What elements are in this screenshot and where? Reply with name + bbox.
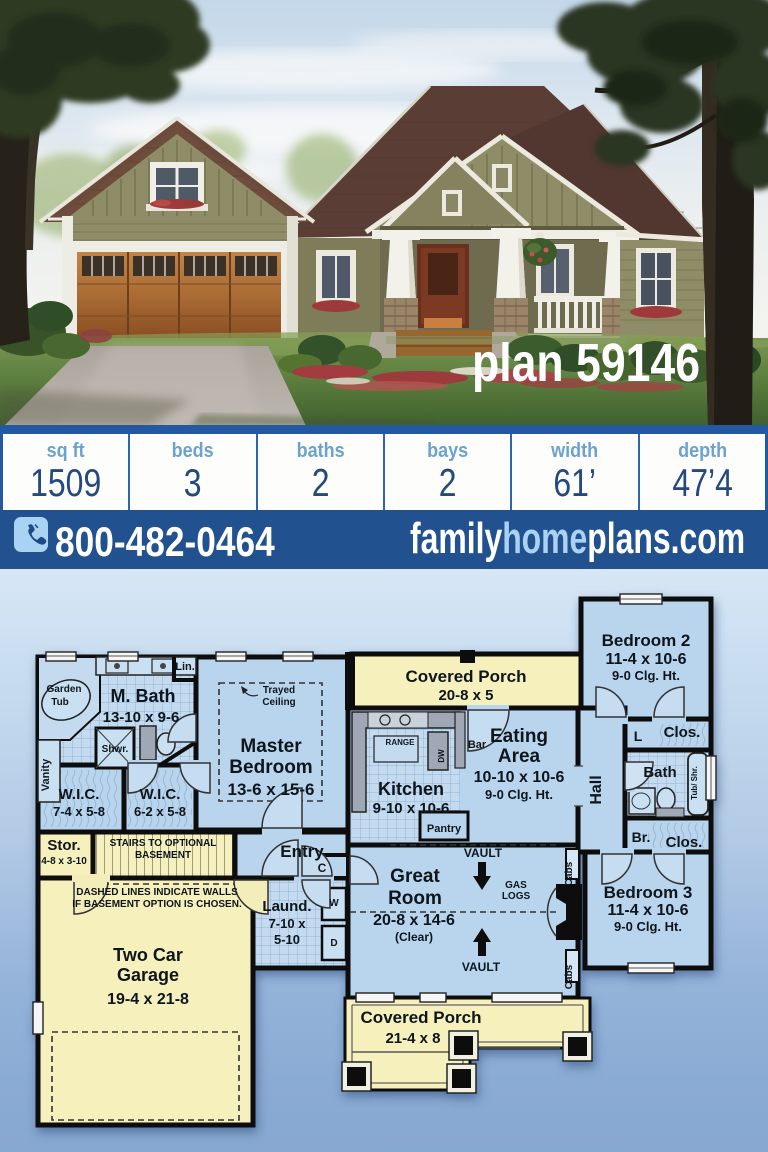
svg-text:Pantry: Pantry bbox=[427, 823, 462, 835]
svg-text:Stor.: Stor. bbox=[47, 837, 80, 854]
svg-text:10-10 x 10-6: 10-10 x 10-6 bbox=[474, 769, 565, 786]
svg-text:Bath: Bath bbox=[643, 764, 676, 781]
svg-text:4-8 x 3-10: 4-8 x 3-10 bbox=[41, 856, 87, 867]
svg-text:Covered Porch: Covered Porch bbox=[361, 1008, 482, 1027]
svg-text:11-4 x 10-6: 11-4 x 10-6 bbox=[608, 902, 689, 919]
svg-text:Cabs: Cabs bbox=[564, 861, 575, 886]
svg-text:20-8 x 5: 20-8 x 5 bbox=[438, 687, 493, 704]
svg-text:W: W bbox=[329, 898, 339, 909]
svg-text:IF BASEMENT OPTION IS CHOSEN.: IF BASEMENT OPTION IS CHOSEN. bbox=[72, 899, 242, 910]
svg-text:9-0 Clg. Ht.: 9-0 Clg. Ht. bbox=[612, 668, 680, 683]
svg-text:Br.: Br. bbox=[632, 829, 651, 845]
svg-text:20-8 x 14-6: 20-8 x 14-6 bbox=[373, 912, 455, 929]
svg-text:Garden: Garden bbox=[46, 684, 81, 695]
svg-text:Room: Room bbox=[388, 888, 442, 909]
svg-text:RANGE: RANGE bbox=[386, 738, 416, 747]
svg-text:9-0 Clg. Ht.: 9-0 Clg. Ht. bbox=[485, 787, 553, 802]
svg-text:Bedroom 3: Bedroom 3 bbox=[604, 883, 693, 902]
svg-text:D: D bbox=[330, 938, 337, 949]
svg-text:Ceiling: Ceiling bbox=[262, 697, 295, 708]
svg-text:Garage: Garage bbox=[117, 965, 179, 985]
svg-text:Bedroom: Bedroom bbox=[229, 757, 312, 778]
svg-text:plan 59146: plan 59146 bbox=[472, 333, 700, 393]
svg-text:11-4 x 10-6: 11-4 x 10-6 bbox=[606, 651, 687, 668]
svg-text:VAULT: VAULT bbox=[462, 960, 501, 974]
svg-text:Vanity: Vanity bbox=[40, 758, 52, 791]
svg-text:Covered Porch: Covered Porch bbox=[406, 667, 527, 686]
svg-text:13-10 x 9-6: 13-10 x 9-6 bbox=[103, 709, 180, 726]
svg-text:Tub/ Shr.: Tub/ Shr. bbox=[690, 766, 699, 800]
svg-text:Hall: Hall bbox=[588, 775, 605, 804]
svg-text:DW: DW bbox=[437, 749, 446, 763]
svg-text:Area: Area bbox=[498, 746, 541, 767]
svg-text:Lin.: Lin. bbox=[175, 661, 195, 673]
svg-text:GAS: GAS bbox=[505, 880, 527, 891]
svg-text:Clos.: Clos. bbox=[666, 834, 703, 851]
svg-text:Great: Great bbox=[390, 866, 440, 887]
svg-text:Tub: Tub bbox=[51, 697, 69, 708]
svg-text:Two Car: Two Car bbox=[113, 945, 183, 965]
svg-text:Shwr.: Shwr. bbox=[102, 744, 129, 755]
svg-text:STAIRS TO OPTIONAL: STAIRS TO OPTIONAL bbox=[110, 838, 217, 849]
svg-text:Entry: Entry bbox=[280, 842, 324, 861]
svg-text:7-10 x: 7-10 x bbox=[269, 916, 307, 931]
svg-text:Bedroom 2: Bedroom 2 bbox=[602, 631, 691, 650]
svg-text:Trayed: Trayed bbox=[263, 685, 295, 696]
svg-text:VAULT: VAULT bbox=[464, 846, 503, 860]
svg-text:Bar: Bar bbox=[468, 739, 487, 751]
svg-text:Master: Master bbox=[240, 736, 302, 757]
svg-text:C: C bbox=[318, 861, 327, 875]
svg-text:Cabs: Cabs bbox=[564, 964, 575, 989]
svg-text:DASHED LINES INDICATE WALLS: DASHED LINES INDICATE WALLS bbox=[76, 887, 238, 898]
svg-text:9-10 x 10-6: 9-10 x 10-6 bbox=[373, 800, 450, 817]
svg-text:L: L bbox=[634, 728, 643, 744]
svg-text:LOGS: LOGS bbox=[502, 891, 531, 902]
svg-text:6-2 x 5-8: 6-2 x 5-8 bbox=[134, 804, 186, 819]
svg-text:19-4 x 21-8: 19-4 x 21-8 bbox=[107, 991, 189, 1008]
svg-text:Laund.: Laund. bbox=[262, 898, 311, 915]
svg-text:Clos.: Clos. bbox=[664, 724, 701, 741]
svg-text:Kitchen: Kitchen bbox=[378, 779, 444, 799]
svg-text:13-6 x 15-6: 13-6 x 15-6 bbox=[228, 780, 315, 799]
svg-text:21-4 x 8: 21-4 x 8 bbox=[385, 1030, 440, 1047]
svg-text:9-0 Clg. Ht.: 9-0 Clg. Ht. bbox=[614, 919, 682, 934]
svg-text:BASEMENT: BASEMENT bbox=[135, 850, 191, 861]
svg-text:W.I.C.: W.I.C. bbox=[59, 786, 100, 803]
svg-text:Eating: Eating bbox=[490, 726, 548, 747]
svg-text:5-10: 5-10 bbox=[274, 932, 300, 947]
svg-text:M. Bath: M. Bath bbox=[111, 686, 176, 706]
svg-text:W.I.C.: W.I.C. bbox=[140, 786, 181, 803]
svg-text:(Clear): (Clear) bbox=[395, 930, 433, 944]
svg-text:7-4 x 5-8: 7-4 x 5-8 bbox=[53, 804, 105, 819]
